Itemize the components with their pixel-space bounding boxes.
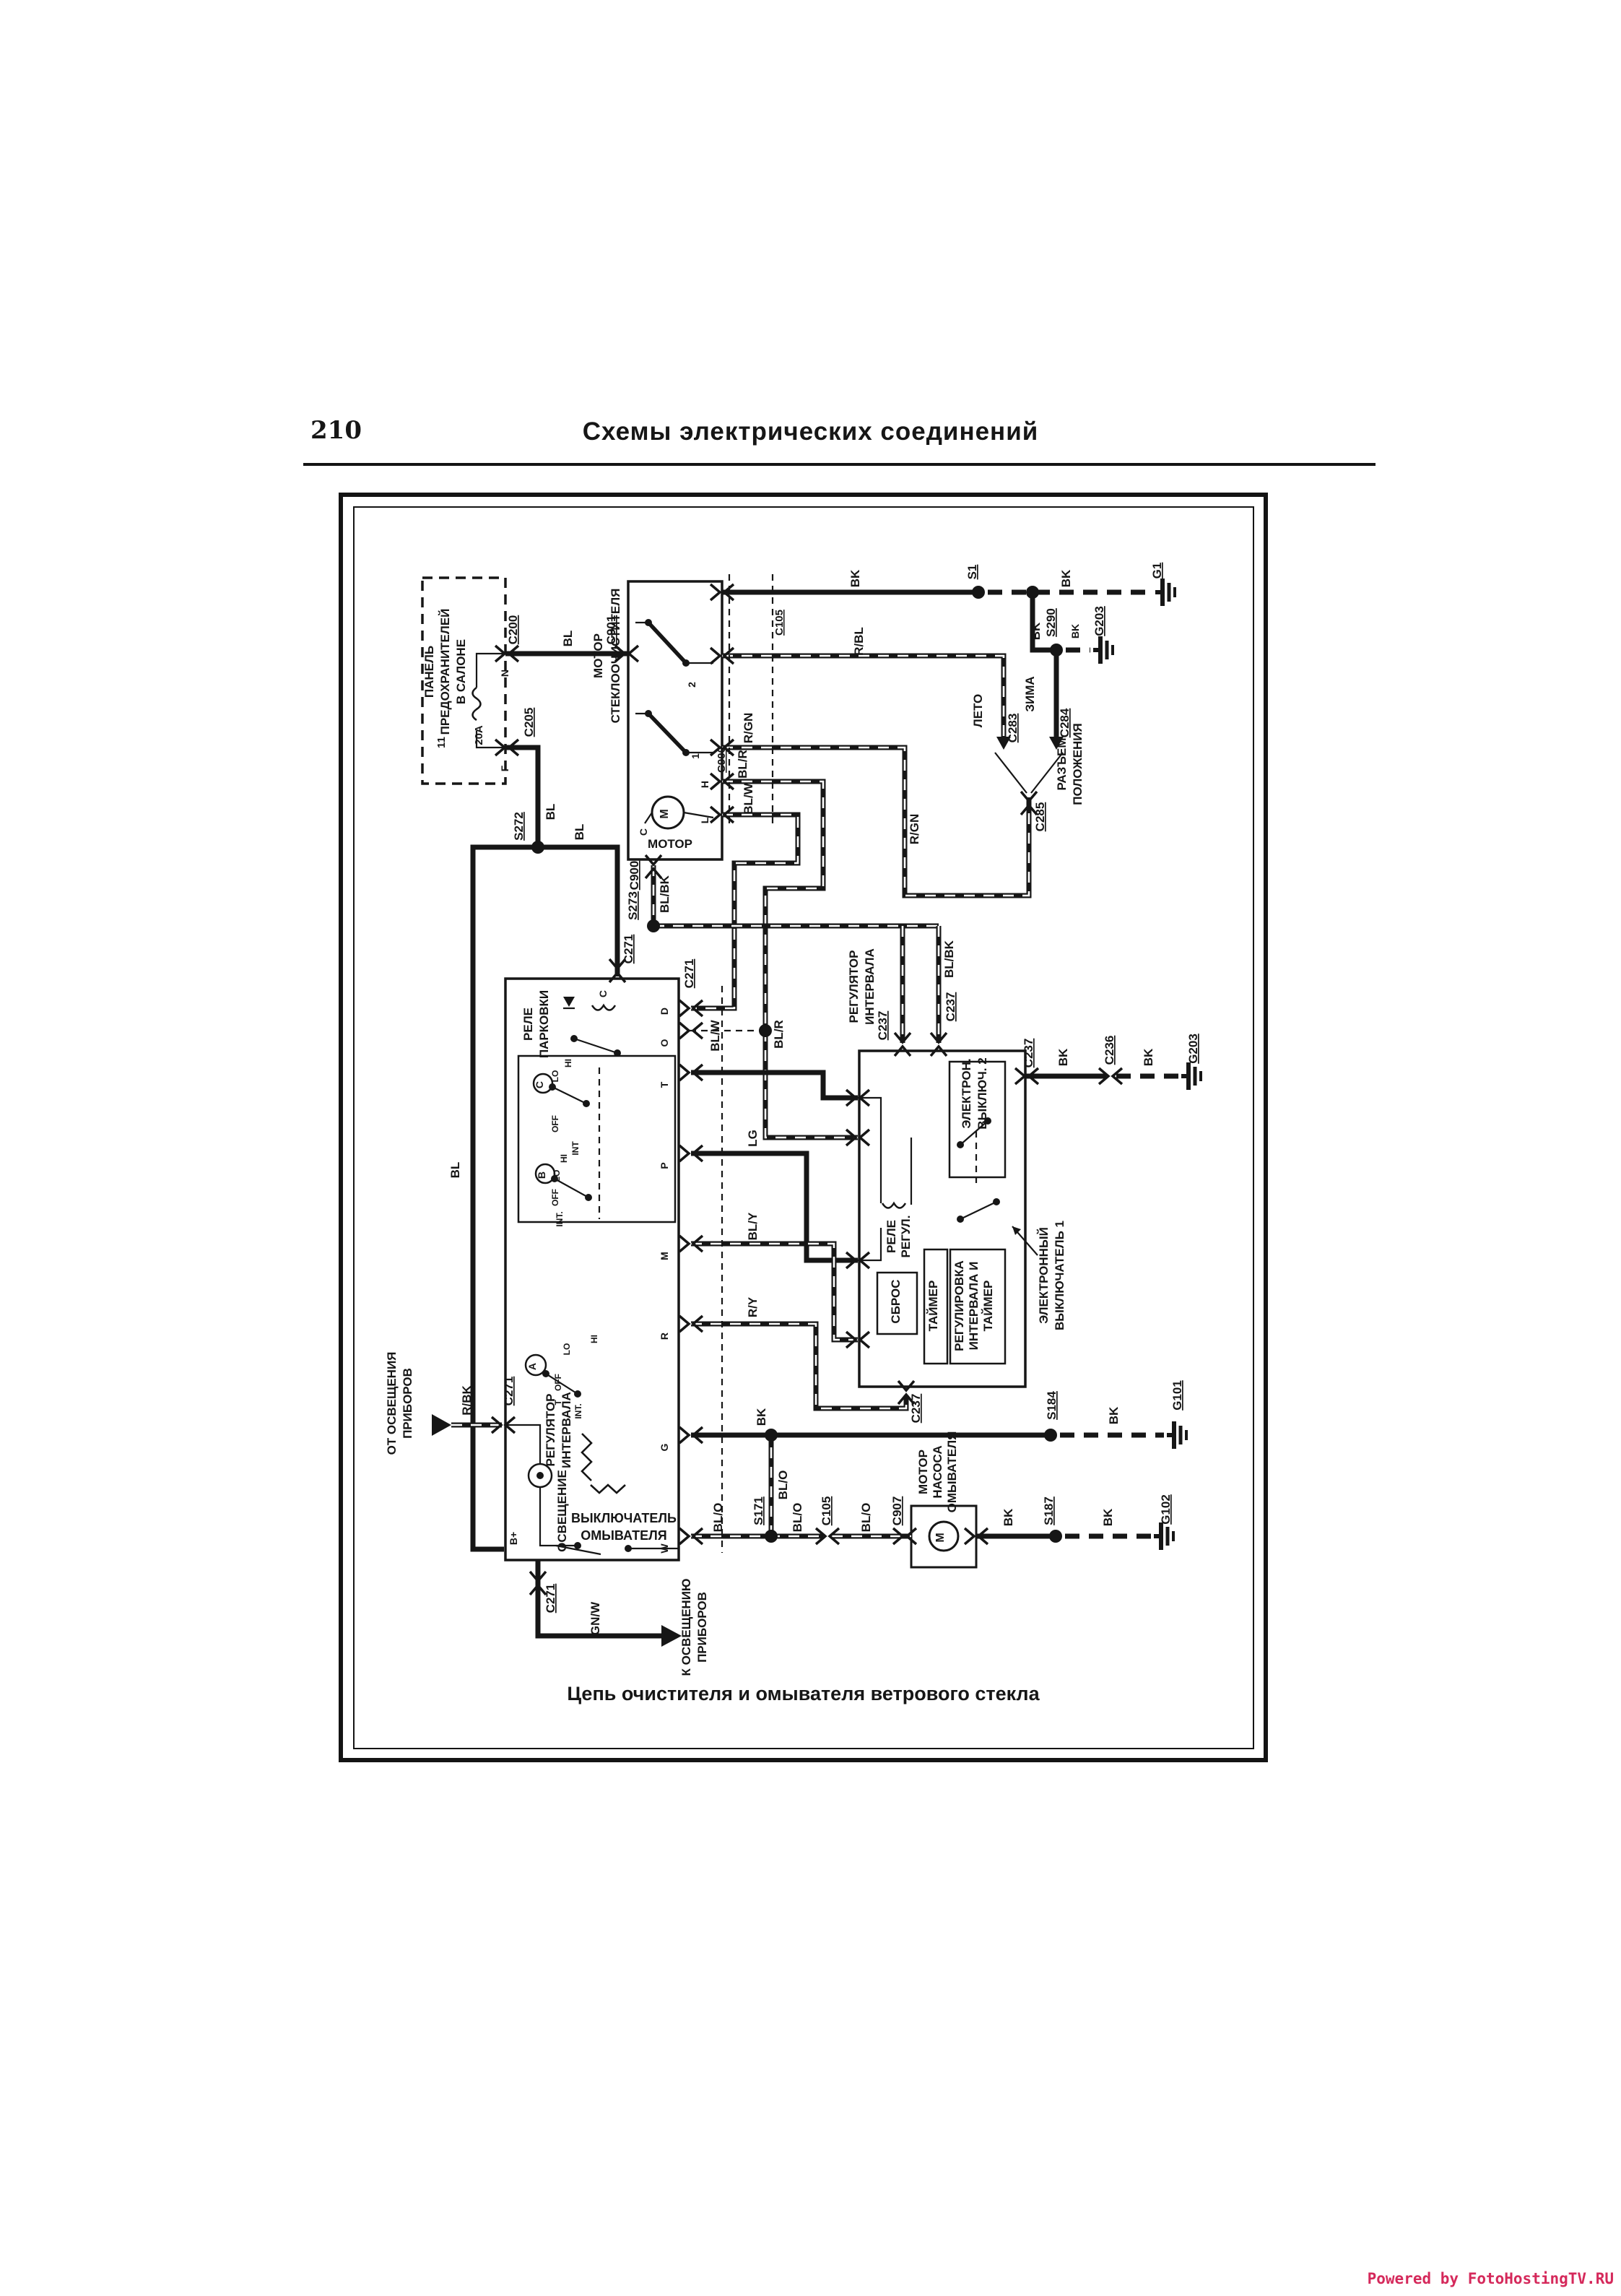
splice-dot-17 [585,1194,592,1201]
diagram-label-126: C907 [890,1496,904,1526]
diagram-label-109: РЕГУЛИРОВКА [952,1260,966,1351]
diagram-label-114: C237 [909,1394,923,1424]
diagram-label-61: LG [746,1130,760,1147]
diagram-label-1: ПРЕДОХРАНИТЕЛЕЙ [438,609,452,735]
diagram-label-49: BL/BK [942,940,956,978]
diagram-label-7: C205 [522,708,536,737]
diagram-label-63: BL/Y [746,1212,760,1240]
diagram-label-69: B+ [508,1532,519,1545]
diagram-label-15: МОТОР [591,633,605,678]
diagram-label-84: HI [589,1335,599,1343]
diagram-label-93: ОТ ОСВЕЩЕНИЯ [385,1352,399,1455]
diagram-label-116: BK [1056,1048,1070,1066]
diagram-label-53: C [597,990,609,997]
diagram-label-122: BL/O [776,1470,790,1500]
diagram-label-102: ИНТЕРВАЛА [863,948,877,1025]
diagram-label-76: B [536,1171,547,1179]
splice-dot-6 [1044,1429,1057,1442]
diagram-label-112: ЭЛЕКТРОННЫЙ [1037,1227,1051,1324]
diagram-label-68: W [659,1543,670,1554]
arrow-from-lighting [432,1414,451,1436]
diagram-label-119: G203 [1186,1034,1200,1064]
diagram-label-89: ИНТЕРВАЛА [560,1392,573,1468]
splice-dot-20 [542,1370,549,1377]
splice-dot-10 [645,619,652,626]
diagram-label-129: ОМЫВАТЕЛЯ [945,1431,959,1513]
diagram-label-94: ПРИБОРОВ [401,1368,414,1439]
diagram-label-56: BL/W [708,1019,722,1051]
wire-2 [538,847,617,976]
wire-stripe-14 [691,815,798,1008]
diagram-label-0: ПАНЕЛЬ [422,646,436,698]
diagram-label-51: C237 [944,992,957,1022]
fuse-element [473,688,481,720]
diagram-label-13: BL [573,824,586,841]
diagram-label-98: GN/W [588,1601,602,1635]
diagram-label-115: C237 [1022,1039,1035,1068]
rheostat-zigzag-1 [582,1434,591,1481]
diagram-label-21: C [638,828,649,836]
diagram-label-43: BL/R [736,750,749,779]
diagram-label-47: BL/BK [658,875,672,913]
diagram-label-39: C285 [1033,802,1047,832]
arrow-to-lighting [661,1625,682,1647]
splice-dot-7 [765,1429,778,1442]
diagram-label-46: C900 [627,861,641,891]
wiring-diagram: ПАНЕЛЬПРЕДОХРАНИТЕЛЕЙВ САЛОНЕ1120AC200NC… [0,0,1621,2296]
splice-dot-14 [549,1083,556,1091]
diagram-label-135: S184 [1045,1391,1059,1420]
diagram-label-55: D [659,1008,670,1015]
diagram-label-2: В САЛОНЕ [454,639,468,704]
watermark: Powered by FotoHostingTV.RU [1368,2270,1614,2287]
diagram-label-136: BK [1107,1406,1121,1424]
splice-dot-13 [682,749,690,756]
diagram-label-41: R/GN [908,814,921,845]
diagram-label-50: C237 [876,1011,890,1041]
diagram-label-60: P [659,1162,670,1169]
diagram-label-110: ИНТЕРВАЛА И [967,1262,981,1351]
diagram-label-105: РЕЛЕ [885,1220,898,1253]
wire-50 [648,714,686,753]
splice-dot-2 [972,586,985,599]
diagram-label-29: ЛЕТО [971,694,985,727]
diagram-label-85: OFF [553,1374,563,1391]
diagram-label-28: R/BL [852,627,866,656]
diagram-label-30: C283 [1006,714,1020,743]
diagram-label-133: BK [1101,1508,1115,1526]
diagram-label-4: 20A [473,725,485,745]
splice-dot-19 [614,1049,621,1057]
manual-page: 210 Схемы электрических соединений [0,0,1621,2296]
diagram-label-58: BL/R [772,1020,786,1049]
wire-stripe-6 [722,656,1004,742]
diagram-label-66: G [659,1443,670,1451]
diagram-label-19: H [699,781,710,788]
diagram-label-97: C271 [544,1584,557,1613]
diagram-label-134: G102 [1159,1494,1173,1525]
diagram-label-31: ЗИМА [1023,676,1037,711]
diagram-label-71: ПАРКОВКИ [537,990,551,1058]
diagram-label-32: C284 [1058,708,1072,737]
diagram-label-137: G101 [1170,1380,1184,1411]
wire-64 [858,1228,881,1260]
parking-relay-coil [592,1005,615,1010]
diagram-label-118: BK [1142,1048,1155,1066]
diagram-label-90: ОСВЕЩЕНИЕ [555,1470,569,1552]
diagram-label-96: C271 [502,1377,516,1406]
diagram-label-132: S187 [1042,1496,1056,1525]
diagram-label-16: СТЕКЛООЧИСТИТЕЛЯ [609,589,622,724]
diagram-label-40: R/GN [742,713,755,744]
diagram-label-5: C200 [506,615,520,645]
splice-dot-1 [647,919,660,932]
diagram-label-108: ТАЙМЕР [926,1281,940,1332]
regulator-relay-coil [882,1203,905,1208]
wire-striped-22 [691,1324,906,1408]
diagram-label-131: BK [1001,1508,1015,1526]
diagram-label-107: СБРОС [889,1279,903,1323]
wire-63 [858,1098,881,1203]
diagram-label-37: РАЗЪЕМ [1055,737,1069,790]
diagram-label-80: INT [570,1141,581,1156]
diagram-label-121: S171 [752,1496,765,1525]
diagram-label-27: G1 [1150,563,1164,579]
wire-34 [995,753,1027,793]
splice-dot-8 [765,1530,778,1543]
diagram-label-73: LO [550,1070,560,1083]
wire-striped-10 [722,748,1029,896]
diagram-label-34: S290 [1044,608,1058,637]
diagram-label-33: BK [1029,622,1043,640]
diagram-label-113: ВЫКЛЮЧАТЕЛЬ 1 [1053,1221,1066,1330]
diagram-label-125: BL/O [859,1503,873,1533]
splice-dot-26 [574,1542,581,1549]
diagram-label-101: РЕГУЛЯТОР [847,950,861,1023]
diagram-label-24: BK [848,569,862,587]
diagram-label-65: R/Y [746,1296,760,1317]
diagram-label-81: INT. [555,1211,565,1226]
splice-dot-3 [1026,586,1039,599]
diagram-label-127: МОТОР [916,1450,930,1494]
lamp-dot [536,1472,544,1479]
wire-51 [684,813,713,818]
diagram-label-77: HI [559,1154,569,1163]
diagram-label-91: ВЫКЛЮЧАТЕЛЬ [571,1511,677,1525]
diagram-label-67: BK [755,1408,768,1426]
wire-54 [552,1087,586,1104]
diagram-label-54: C271 [682,959,696,989]
diagram-label-25: S1 [965,565,979,580]
diagram-label-70: РЕЛЕ [521,1008,535,1041]
diagram-label-18: 1 [690,753,701,759]
diagram-label-8: F [499,765,510,771]
splice-dot-12 [645,710,652,717]
diagram-label-59: T [659,1081,670,1088]
diagram-label-14: BL [448,1162,462,1179]
switch-bc-box [518,1056,675,1222]
diagram-label-26: BK [1059,569,1073,587]
labels-layer: ПАНЕЛЬПРЕДОХРАНИТЕЛЕЙВ САЛОНЕ1120AC200NC… [385,563,1200,1676]
splice-dot-21 [574,1390,581,1398]
diagram-label-42: C900 [716,747,728,773]
diagram-label-123: BL/O [791,1503,804,1533]
splice-dot-9 [1049,1530,1062,1543]
diagram-label-128: НАСОСА [931,1445,944,1498]
outer-border [341,495,1266,1760]
splice-dot-0 [531,841,544,854]
diagram-label-103: ЭЛЕКТРОН. [960,1058,973,1128]
wire-56 [574,1039,617,1053]
splice-dot-4 [1050,644,1063,657]
diagram-label-22: M [659,809,671,818]
diagram-label-124: C105 [820,1496,833,1526]
diagram-label-111: ТАЙМЕР [981,1281,995,1332]
diagram-label-75: OFF [550,1115,560,1132]
wire-striped-6 [722,656,1004,742]
splice-dot-27 [625,1545,632,1552]
splice-dot-11 [682,659,690,667]
diagram-label-6: N [499,670,510,677]
diagram-label-72: C [534,1081,545,1088]
diagram-label-74: HI [563,1059,573,1067]
wiper-switch-box [505,979,679,1560]
splice-dot-23 [993,1198,1000,1205]
diagram-label-9: BL [561,631,575,647]
diagram-label-117: C236 [1103,1036,1116,1065]
diagram-label-64: R [659,1333,670,1340]
diagram-label-79: OFF [550,1189,560,1206]
diagram-label-106: РЕГУЛ. [899,1216,913,1258]
diagram-label-62: M [659,1252,670,1260]
splice-dot-5 [759,1024,772,1037]
splice-dot-15 [583,1100,590,1107]
wire-striped-14 [691,815,798,1008]
diagram-label-130: M [934,1533,947,1542]
figure-caption: Цепь очистителя и омывателя ветрового ст… [341,1683,1266,1705]
wire-stripe-22 [691,1324,906,1408]
diagram-label-23: МОТОР [648,837,692,851]
diagram-label-87: INT. [573,1403,583,1418]
rheostat-zigzag-2 [591,1485,625,1493]
splice-dot-24 [957,1141,964,1148]
inner-border [354,507,1253,1749]
diagram-label-57: O [659,1039,670,1047]
diagram-frame [341,495,1266,1760]
diagram-label-82: A [526,1363,538,1370]
diagram-label-35: BK [1069,624,1081,638]
symbols-layer [432,579,1201,1647]
diagram-label-45: C105 [773,610,786,636]
diagram-label-120: BL/O [711,1503,725,1533]
wire-60 [960,1202,996,1219]
diagram-label-83: LO [562,1343,572,1356]
wire-52 [645,813,652,823]
diagram-label-48: S273 [626,891,640,920]
diagram-label-95: R/BK [460,1385,474,1416]
diagram-label-11: S272 [512,812,526,841]
diagram-label-104: ВЫКЛЮЧ. 2 [975,1057,989,1129]
diagram-label-92: ОМЫВАТЕЛЯ [581,1528,666,1543]
diagram-label-12: BL [544,804,557,820]
splice-dot-18 [570,1035,578,1042]
diagram-label-44: BL/W [742,782,755,814]
wire-19 [691,1073,858,1098]
diagram-label-3: 11 [435,737,448,748]
diagram-label-99: К ОСВЕЩЕНИЮ [679,1579,693,1676]
diagram-label-88: РЕГУЛЯТОР [544,1394,557,1467]
diagram-label-20: L [699,817,710,823]
diagram-label-52: C271 [622,935,635,964]
diagram-label-38: ПОЛОЖЕНИЯ [1071,723,1085,805]
splice-dot-22 [957,1216,964,1223]
wire-stripe-10 [722,748,1029,896]
parking-relay-diode [563,997,575,1007]
diagram-label-100: ПРИБОРОВ [695,1592,709,1663]
diagram-label-36: G203 [1092,606,1106,636]
wire-47 [648,623,686,663]
interval-regulator-box [859,1051,1025,1387]
diagram-label-17: 2 [686,682,697,688]
diagram-label-78: LO [552,1170,562,1182]
